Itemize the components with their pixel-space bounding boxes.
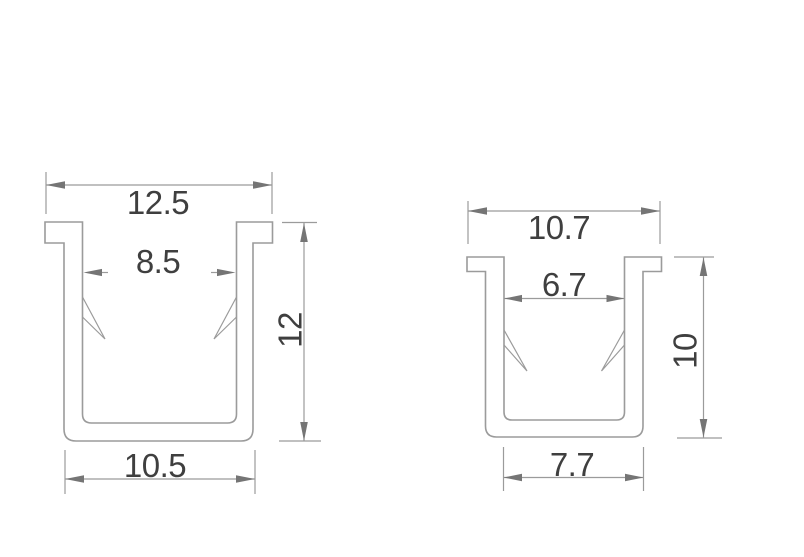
dim-label-height: 12 [272, 312, 309, 348]
arrow-down-icon [300, 422, 308, 441]
left-profile-height-dimension: 12 [272, 223, 322, 442]
dim-label-top-width: 10.7 [528, 209, 590, 246]
right-profile-bottom-width-dimension: 7.7 [504, 446, 644, 491]
dim-label-inner-width: 6.7 [542, 266, 586, 303]
arrow-right-icon [607, 295, 625, 302]
dim-label-bottom-width: 10.5 [124, 447, 186, 484]
left-profile-bottom-width-dimension: 10.5 [65, 447, 255, 494]
left-profile-inner-width-dimension: 8.5 [84, 243, 236, 280]
arrow-right-icon [236, 475, 255, 483]
arrow-right-icon [625, 474, 644, 482]
arrow-down-icon [700, 419, 708, 438]
technical-drawing-canvas: 12.5 8.5 12 10.5 [0, 0, 804, 557]
arrow-up-icon [700, 258, 708, 277]
right-profile-left-barb [504, 330, 527, 371]
arrow-left-icon [504, 474, 523, 482]
right-profile-inner-width-dimension: 6.7 [504, 266, 625, 303]
arrow-up-icon [300, 223, 308, 242]
arrow-right-icon [253, 181, 272, 189]
arrow-left-icon [46, 181, 65, 189]
arrow-left-icon [468, 207, 487, 215]
dim-label-bottom-width: 7.7 [550, 446, 594, 483]
left-profile-left-barb [83, 297, 106, 339]
arrow-left-icon [84, 269, 103, 276]
arrow-left-icon [65, 475, 84, 483]
right-profile-top-width-dimension: 10.7 [468, 201, 660, 246]
arrow-left-icon [504, 295, 522, 302]
left-profile: 12.5 8.5 12 10.5 [45, 172, 321, 494]
left-profile-top-width-dimension: 12.5 [46, 172, 272, 221]
right-profile: 10.7 6.7 10 7.7 [467, 201, 722, 491]
dim-label-inner-width: 8.5 [136, 243, 180, 280]
arrow-right-icon [217, 269, 236, 276]
right-profile-height-dimension: 10 [667, 257, 723, 438]
left-profile-right-barb [214, 297, 237, 339]
right-profile-right-barb [602, 330, 625, 371]
dim-label-top-width: 12.5 [127, 184, 189, 221]
arrow-right-icon [641, 207, 660, 215]
dim-label-height: 10 [667, 333, 704, 369]
